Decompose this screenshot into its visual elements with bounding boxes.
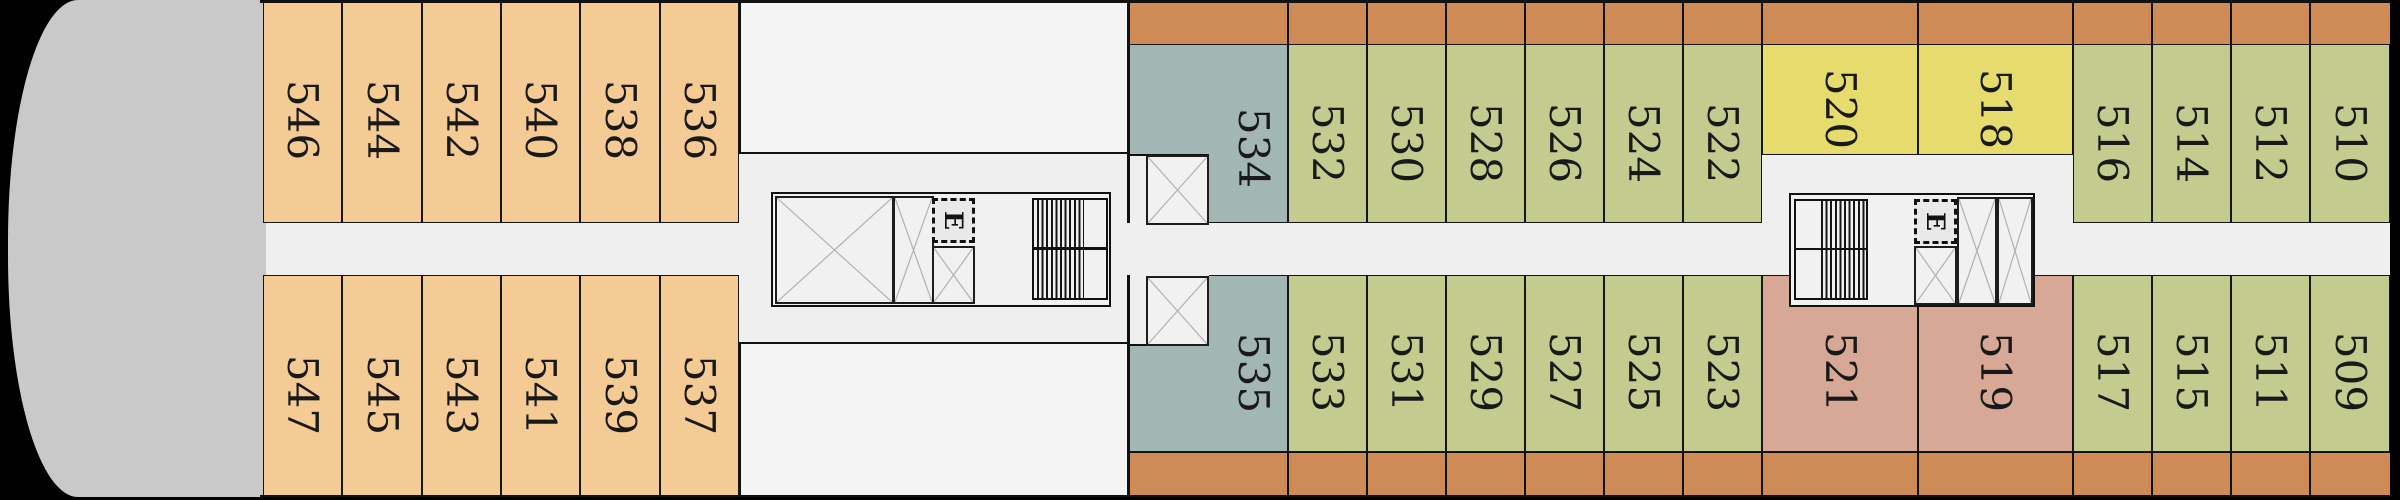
cabin-522[interactable] (1683, 44, 1762, 223)
balcony-strip-top (1128, 0, 2390, 46)
balcony-divider (1524, 453, 1527, 495)
balcony-strip-bottom (1128, 451, 2390, 497)
hull-frame-top (260, 0, 2390, 3)
ship-bow (8, 0, 266, 497)
deck-plan: EE54654454254053853653453253052852652452… (0, 0, 2400, 500)
structure-block-top (739, 0, 1128, 154)
elevator-shaft-icon (893, 196, 934, 304)
cabin-547[interactable] (263, 275, 342, 497)
cabin-518[interactable] (1918, 44, 2073, 155)
cabin-527[interactable] (1525, 275, 1604, 452)
balcony-divider (1287, 2, 1290, 44)
cabin-537[interactable] (660, 275, 739, 497)
stair-elevator-core-forward: E (771, 192, 1111, 307)
elevator-label: E (941, 211, 966, 230)
balcony-divider (2230, 453, 2233, 495)
balcony-divider (2151, 2, 2154, 44)
stairs-icon (1032, 198, 1108, 300)
balcony-divider (2230, 2, 2233, 44)
cabin-530[interactable] (1367, 44, 1446, 223)
cabin-523[interactable] (1683, 275, 1762, 452)
balcony-divider (2309, 2, 2312, 44)
cabin-511[interactable] (2231, 275, 2310, 452)
cabin-510[interactable] (2310, 44, 2390, 223)
balcony-divider (2151, 453, 2154, 495)
cabin-514[interactable] (2152, 44, 2231, 223)
cabin-515[interactable] (2152, 275, 2231, 452)
balcony-divider (1761, 453, 1764, 495)
balcony-divider (1445, 453, 1448, 495)
balcony-divider (1603, 2, 1606, 44)
cabin-538[interactable] (580, 0, 660, 223)
cabin-517[interactable] (2073, 275, 2152, 452)
hull-frame-bottom (260, 495, 2390, 498)
balcony-divider (1287, 453, 1290, 495)
elevator-marker: E (1914, 199, 1957, 244)
elevator-label: E (1923, 212, 1948, 231)
stairs-icon (1794, 199, 1868, 300)
cabin-541[interactable] (501, 275, 580, 497)
cabin-525[interactable] (1604, 275, 1683, 452)
cabin-529[interactable] (1446, 275, 1525, 452)
balcony-divider (1366, 2, 1369, 44)
cabin-524[interactable] (1604, 44, 1683, 223)
cabin-531[interactable] (1367, 275, 1446, 452)
elevator-shaft-icon (1957, 197, 1997, 305)
cabin-546[interactable] (263, 0, 342, 223)
elevator-marker: E (932, 198, 975, 243)
balcony-divider (2072, 2, 2075, 44)
cabin-533[interactable] (1288, 275, 1367, 452)
cabin-545[interactable] (342, 275, 422, 497)
balcony-divider (1603, 453, 1606, 495)
balcony-divider (2072, 453, 2075, 495)
shaft-x-icon (932, 246, 975, 304)
cabin-520[interactable] (1762, 44, 1918, 155)
cabin-540[interactable] (501, 0, 580, 223)
cabin-512[interactable] (2231, 44, 2310, 223)
stairs-landing-line (1034, 247, 1106, 250)
structure-block-bottom (739, 342, 1128, 497)
cabin-526[interactable] (1525, 44, 1604, 223)
elevator-shaft-icon (775, 196, 894, 304)
cabin-516[interactable] (2073, 44, 2152, 223)
balcony-divider (1682, 2, 1685, 44)
cabin-528[interactable] (1446, 44, 1525, 223)
balcony-divider (1366, 453, 1369, 495)
shaft-x-icon (1914, 246, 1957, 305)
balcony-divider (1761, 2, 1764, 44)
cabin-543[interactable] (422, 275, 501, 497)
shaft-x-icon (1146, 276, 1209, 346)
stairs-landing-line (1796, 248, 1866, 251)
balcony-divider (1524, 2, 1527, 44)
cabin-532[interactable] (1288, 44, 1367, 223)
shaft-x-icon (1146, 155, 1209, 225)
balcony-divider (1682, 453, 1685, 495)
cabin-509[interactable] (2310, 275, 2390, 452)
wall-line (1127, 275, 1130, 497)
cabin-539[interactable] (580, 275, 660, 497)
cabin-542[interactable] (422, 0, 501, 223)
balcony-divider (1917, 2, 1920, 44)
balcony-divider (2309, 453, 2312, 495)
balcony-divider (1917, 453, 1920, 495)
wall-line (1127, 0, 1130, 223)
elevator-shaft-icon (1997, 197, 2033, 305)
balcony-divider (1445, 2, 1448, 44)
stair-elevator-core-aft: E (1789, 193, 2035, 307)
cabin-544[interactable] (342, 0, 422, 223)
cabin-536[interactable] (660, 0, 739, 223)
